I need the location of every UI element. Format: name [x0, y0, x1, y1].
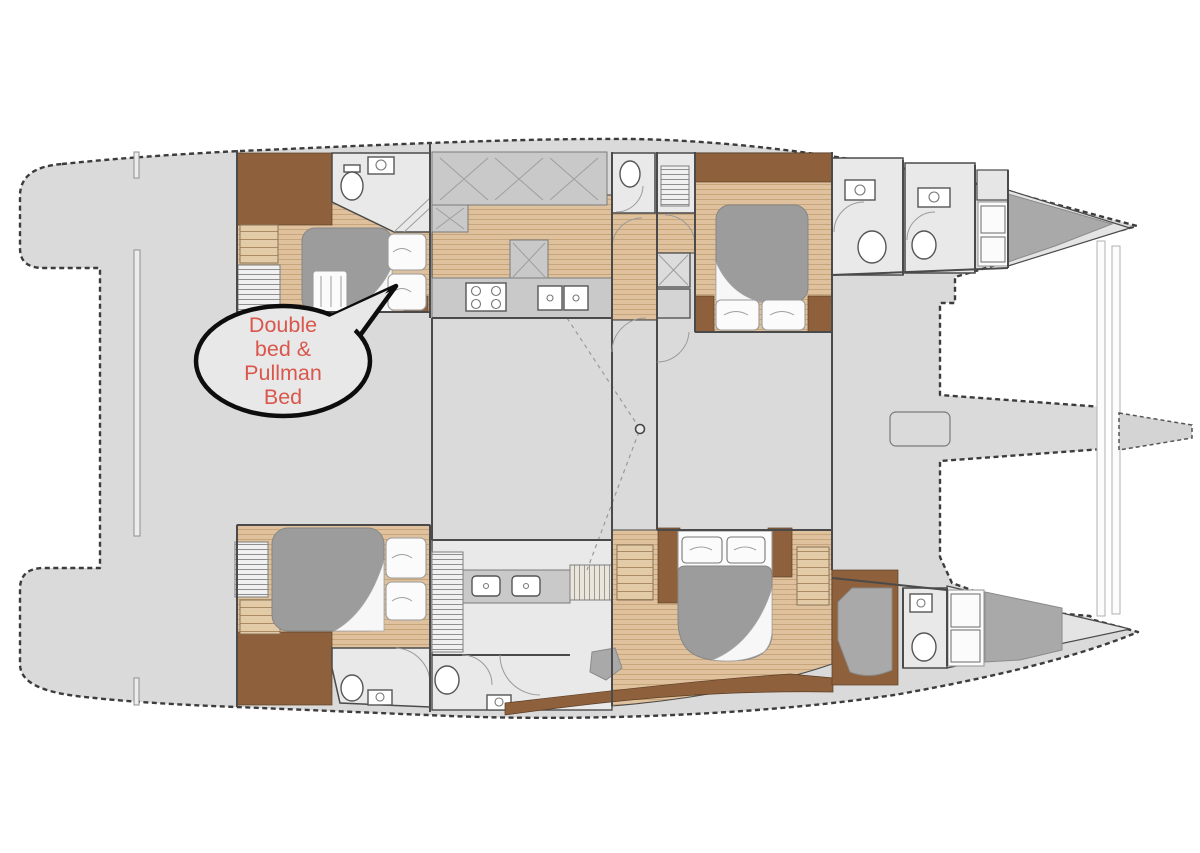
- wc-room: [905, 163, 975, 273]
- bed-side-joinery: [808, 296, 832, 332]
- galley: [432, 152, 612, 318]
- bed-head-joinery: [658, 528, 680, 603]
- catamaran-deck-plan: Double bed & Pullman Bed: [0, 0, 1200, 853]
- pullman-bed-panel: [313, 271, 347, 312]
- toilet-icon: [858, 231, 886, 263]
- toilet-icon: [435, 666, 459, 694]
- berth-base: [978, 202, 1008, 266]
- callout-line-3: Pullman: [244, 361, 322, 385]
- vanity-sink: [472, 576, 500, 596]
- callout-line-2: bed &: [255, 337, 311, 361]
- cabin-forward-port: [237, 153, 430, 312]
- cabin-joinery: [695, 153, 832, 182]
- wardrobe-slats: [432, 552, 463, 652]
- side-steps: [797, 547, 829, 605]
- berth-base: [948, 590, 984, 666]
- companionway-steps: [617, 545, 653, 600]
- galley-sink: [564, 286, 588, 310]
- toilet-icon: [341, 172, 363, 200]
- cabin-joinery: [237, 632, 332, 705]
- shelf-slats: [570, 565, 612, 600]
- cabin-steps: [240, 225, 278, 263]
- forestay-strip-2: [1112, 246, 1120, 614]
- toilet-icon: [620, 161, 640, 187]
- chaise-lounge: [838, 588, 892, 676]
- bed-side-joinery: [695, 296, 714, 332]
- berth-blanket: [985, 592, 1062, 662]
- toilet-tank: [344, 165, 360, 172]
- pillow: [762, 300, 805, 330]
- shelf-slats: [661, 166, 689, 206]
- door-knob: [636, 425, 645, 434]
- day-head-block: [612, 153, 695, 320]
- starboard-hull-interior: [235, 525, 1130, 715]
- toilet-icon: [341, 675, 363, 701]
- vanity-sink: [512, 576, 540, 596]
- sink: [845, 180, 875, 200]
- toilet-icon: [912, 633, 936, 661]
- bowsprit-tip: [1119, 413, 1192, 450]
- cockpit-table-line: [134, 250, 140, 536]
- corridor-floor: [657, 213, 695, 253]
- owner-bathroom: [432, 540, 612, 710]
- callout-line-4: Bed: [264, 385, 302, 409]
- toilet-icon: [912, 231, 936, 259]
- sink: [368, 690, 392, 705]
- forestay-strip-1: [1097, 241, 1105, 616]
- aft-deck-fitting-top: [134, 152, 139, 178]
- cabin-center-port: [695, 153, 832, 332]
- sink: [910, 594, 932, 612]
- galley-sink: [538, 286, 562, 310]
- locker: [977, 170, 1008, 200]
- sink: [918, 188, 950, 207]
- bow-starboard: [903, 586, 1130, 668]
- pillow: [716, 300, 759, 330]
- callout-line-1: Double: [249, 313, 317, 337]
- aft-deck-fitting-bottom: [134, 678, 139, 705]
- utility-cell: [657, 289, 690, 318]
- cabin-locker: [235, 542, 268, 597]
- cabin-joinery: [237, 153, 332, 225]
